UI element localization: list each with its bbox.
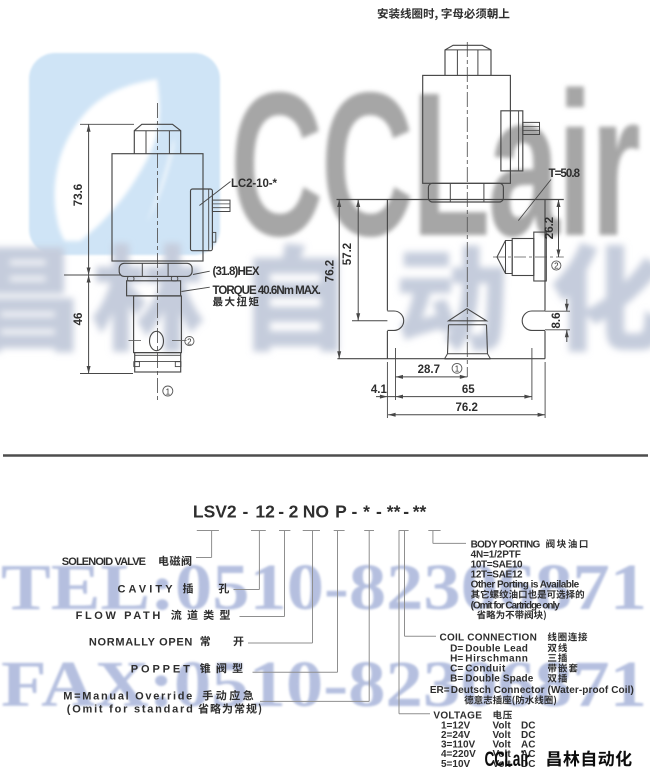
svg-text:COIL CONNECTION: COIL CONNECTION xyxy=(440,632,537,643)
svg-text:M=Manual Override: M=Manual Override xyxy=(63,691,192,703)
svg-text:4.1: 4.1 xyxy=(371,384,388,396)
svg-text:CCLair: CCLair xyxy=(485,747,530,771)
svg-text:-: - xyxy=(243,502,249,522)
svg-text:Other Porting is Available: Other Porting is Available xyxy=(471,580,580,591)
svg-text:73.6: 73.6 xyxy=(73,184,85,206)
svg-text:65: 65 xyxy=(462,384,475,396)
svg-text:(31.8)HEX: (31.8)HEX xyxy=(213,266,260,278)
svg-text:46: 46 xyxy=(73,313,85,326)
svg-text:-: - xyxy=(352,502,358,522)
svg-text:1: 1 xyxy=(166,388,171,397)
svg-text:SOLENOID VALVE: SOLENOID VALVE xyxy=(62,556,146,568)
svg-text:Double Spade: Double Spade xyxy=(465,674,533,685)
svg-text:2: 2 xyxy=(187,337,192,346)
svg-text:**: ** xyxy=(413,502,427,522)
svg-text:-: - xyxy=(403,502,409,522)
svg-text:-: - xyxy=(376,502,382,522)
svg-text:57.2: 57.2 xyxy=(342,243,354,265)
svg-text:-: - xyxy=(278,502,284,522)
svg-text:2: 2 xyxy=(289,502,299,522)
svg-text:FLOW PATH: FLOW PATH xyxy=(76,610,161,622)
svg-text:Deutsch Connector (Water-proof: Deutsch Connector (Water-proof Coil) xyxy=(451,685,634,696)
svg-text:(Omit for standard: (Omit for standard xyxy=(67,704,193,716)
svg-text:(Omit for Cartridge only: (Omit for Cartridge only xyxy=(471,600,561,611)
svg-text:ER=: ER= xyxy=(430,685,450,696)
svg-text:76.2: 76.2 xyxy=(325,260,337,282)
svg-text:**: ** xyxy=(387,502,401,522)
svg-text:NO: NO xyxy=(303,502,329,522)
svg-text:8.6: 8.6 xyxy=(551,313,563,329)
svg-text:LSV2: LSV2 xyxy=(193,502,237,522)
svg-text:NORMALLY OPEN: NORMALLY OPEN xyxy=(89,636,192,648)
svg-text:26.2: 26.2 xyxy=(544,217,556,239)
svg-text:5=10V: 5=10V xyxy=(441,759,471,770)
svg-text:TORQUE 40.6Nm MAX.: TORQUE 40.6Nm MAX. xyxy=(213,285,322,297)
svg-text:1: 1 xyxy=(455,365,460,374)
svg-text:2: 2 xyxy=(554,262,559,271)
svg-text:76.2: 76.2 xyxy=(456,402,478,414)
svg-text:*: * xyxy=(363,502,370,522)
svg-text:12: 12 xyxy=(255,502,275,522)
svg-text:LC2-10-*: LC2-10-* xyxy=(231,178,278,190)
svg-text:P: P xyxy=(335,502,347,522)
svg-text:B=: B= xyxy=(450,674,463,685)
svg-text:28.7: 28.7 xyxy=(418,364,440,376)
svg-text:T=50.8: T=50.8 xyxy=(549,168,581,180)
